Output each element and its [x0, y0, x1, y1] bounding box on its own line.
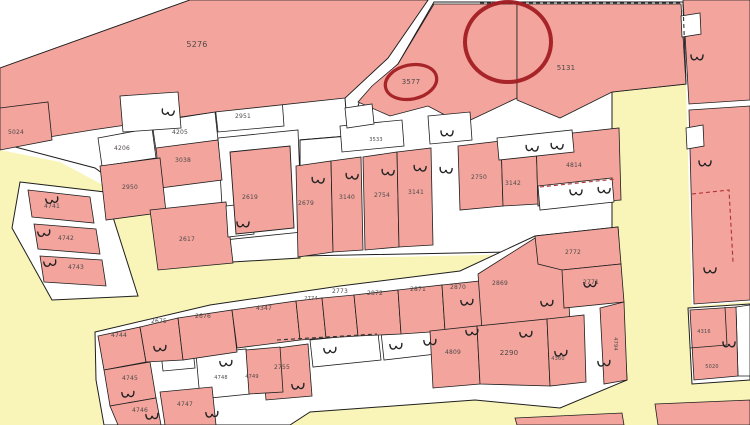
parcel-label-4742: 4742: [58, 235, 74, 242]
parcel-label-4746: 4746: [132, 407, 148, 414]
parcel-label-4205: 4205: [172, 129, 188, 136]
parcel-4743: [40, 256, 106, 286]
parcel-label-5276: 5276: [186, 40, 207, 49]
parcel-label-2676: 2676: [195, 313, 211, 320]
parcel-label-2951: 2951: [235, 113, 251, 120]
building-2619: [230, 146, 294, 234]
building: [120, 92, 181, 132]
parcel-2773: [322, 295, 358, 338]
parcel-label-4316: 4316: [697, 329, 711, 335]
parcel-label-3142: 3142: [505, 180, 521, 187]
parcel-label-4743: 4743: [68, 264, 84, 271]
parcel-label-3577: 3577: [402, 78, 421, 86]
parcel-label-3038: 3038: [175, 157, 191, 164]
parcel-2679: [296, 161, 333, 257]
parcel-2754: [363, 152, 399, 250]
parcel-sliver-b: [655, 400, 750, 425]
parcel-3141: [397, 148, 433, 247]
parcel-label-4748: 4748: [214, 375, 228, 381]
parcel-3038: [156, 140, 222, 188]
parcel-3140: [331, 157, 363, 252]
parcel-label-2617: 2617: [179, 236, 195, 243]
map-canvas[interactable]: 5276357751315024295142054206303829502619…: [0, 0, 750, 425]
parcel-label-4360: 4360: [551, 356, 565, 362]
parcel-label-2771: 2771: [583, 279, 599, 286]
parcel-label-5024: 5024: [8, 129, 24, 136]
building: [686, 125, 704, 149]
parcel-label-5020: 5020: [705, 364, 719, 370]
parcel-label-2872: 2872: [367, 290, 383, 297]
parcel-label-4744: 4744: [111, 332, 127, 339]
parcel-label-3141: 3141: [408, 189, 424, 196]
cadastral-map[interactable]: 5276357751315024295142054206303829502619…: [0, 0, 750, 425]
parcel-2774: [296, 298, 326, 340]
parcel-label-4206: 4206: [114, 145, 130, 152]
parcel-label-3140: 3140: [339, 194, 355, 201]
parcel-label-2772: 2772: [565, 249, 581, 256]
parcel-label-4749: 4749: [245, 374, 259, 380]
parcel-label-2773: 2773: [332, 288, 348, 295]
parcel-label-2755: 2755: [274, 364, 290, 371]
parcel-label-2619: 2619: [242, 194, 258, 201]
parcel-label-2750: 2750: [471, 174, 487, 181]
parcel-label-2679: 2679: [298, 200, 314, 207]
parcel-label-4747: 4747: [177, 401, 193, 408]
parcel-label-2871: 2871: [410, 286, 426, 293]
parcel-label-2774: 2774: [304, 296, 318, 302]
building: [428, 112, 472, 144]
parcel-label-2754: 2754: [374, 192, 390, 199]
parcel-4809: [430, 326, 480, 388]
parcel-label-5131: 5131: [557, 64, 576, 72]
parcel-label-4814: 4814: [566, 162, 582, 169]
parcel-label-4809: 4809: [445, 349, 461, 356]
building: [345, 104, 374, 128]
parcel-label-2950: 2950: [122, 184, 138, 191]
corner-cell-white: [736, 305, 750, 376]
parcel-label-2870: 2870: [450, 284, 466, 291]
parcel-label-2675: 2675: [151, 318, 167, 325]
parcel-label-2869: 2869: [492, 280, 508, 287]
parcel-label-2290: 2290: [500, 349, 519, 357]
parcel-label-4745: 4745: [122, 375, 138, 382]
parcel-label-3533: 3533: [369, 137, 383, 143]
parcel-label-4347: 4347: [256, 305, 272, 312]
parcel-label-4741: 4741: [44, 203, 60, 210]
parcel-label-4794: 4794: [612, 337, 618, 351]
